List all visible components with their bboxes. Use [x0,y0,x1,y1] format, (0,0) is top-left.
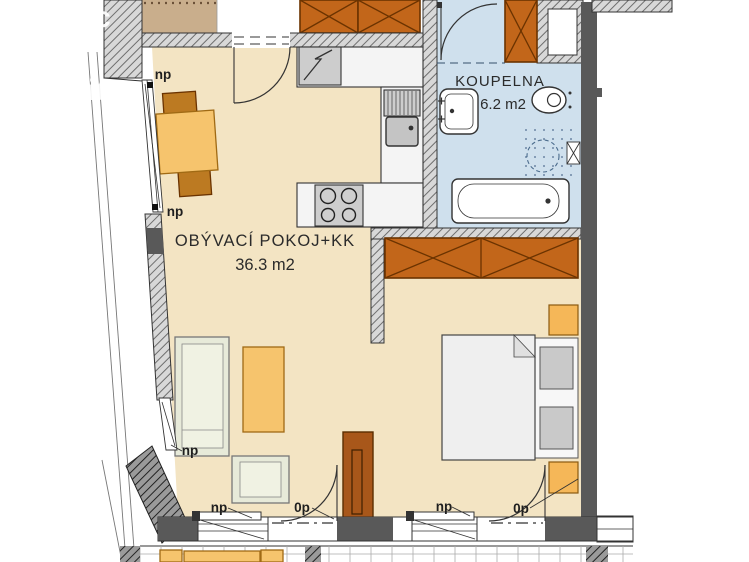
balcony [120,546,633,562]
washbasin [438,89,478,134]
living-room-name: OBÝVACÍ POKOJ+KK [175,231,355,250]
watermark-fragment-2: it [88,74,106,107]
balcony-divider-left [120,546,140,562]
balcony-furniture [160,550,283,562]
shaft [548,9,577,55]
wall-partition [371,239,384,343]
label-op-bedroom-door: 0p [513,501,529,516]
sofa [175,337,229,456]
kitchen-sink [384,90,420,146]
armchair [232,456,289,503]
watermark-fragment-1: c [94,1,111,34]
entry-hall [142,0,420,33]
wall-top-right [592,0,672,12]
bathroom-cabinet [505,0,537,62]
bedroom-wardrobe [385,238,578,278]
nightstand-bottom [549,462,578,493]
label-np-dining-bottom: np [167,204,184,219]
nightstand-top [549,305,578,335]
floor-plan-drawing: OBÝVACÍ POKOJ+KK 36.3 m2 KOUPELNA 6.2 m2… [0,0,749,562]
dining-table [156,110,218,174]
wall-left-dark-block [146,228,164,254]
balcony-chair-right [261,550,283,562]
wall-valve-marker [567,142,580,164]
living-room-area: 36.3 m2 [235,256,295,274]
entry-floor [142,0,217,33]
tv-sideboard [343,432,373,524]
wall-right-column [581,2,597,540]
bedroom-window [406,511,477,541]
bathtub [452,179,569,223]
balcony-divider-right [586,546,608,562]
entry-wardrobe [300,0,420,33]
label-np-bedroom-window: np [436,499,453,514]
facade-lines [88,52,135,562]
pillow-bottom [540,407,573,449]
bathroom-name: KOUPELNA [455,73,545,90]
label-op-living-door: 0p [294,500,310,515]
wall-bathroom-left [423,0,437,239]
floor-plan-page: OBÝVACÍ POKOJ+KK 36.3 m2 KOUPELNA 6.2 m2… [0,0,749,562]
living-window [192,511,268,541]
coffee-table [243,347,284,432]
balcony-table [184,551,260,562]
label-np-left-lower: np [182,443,199,458]
balcony-chair-left [160,550,182,562]
washer-space-dots [518,127,572,179]
balcony-divider-mid [305,546,321,562]
pillow-top [540,347,573,389]
bed [442,335,578,460]
label-np-living-window: np [211,500,228,515]
bathroom-area: 6.2 m2 [480,96,526,113]
label-np-dining-top: np [155,67,172,82]
stove [315,185,363,226]
fridge [299,47,341,85]
